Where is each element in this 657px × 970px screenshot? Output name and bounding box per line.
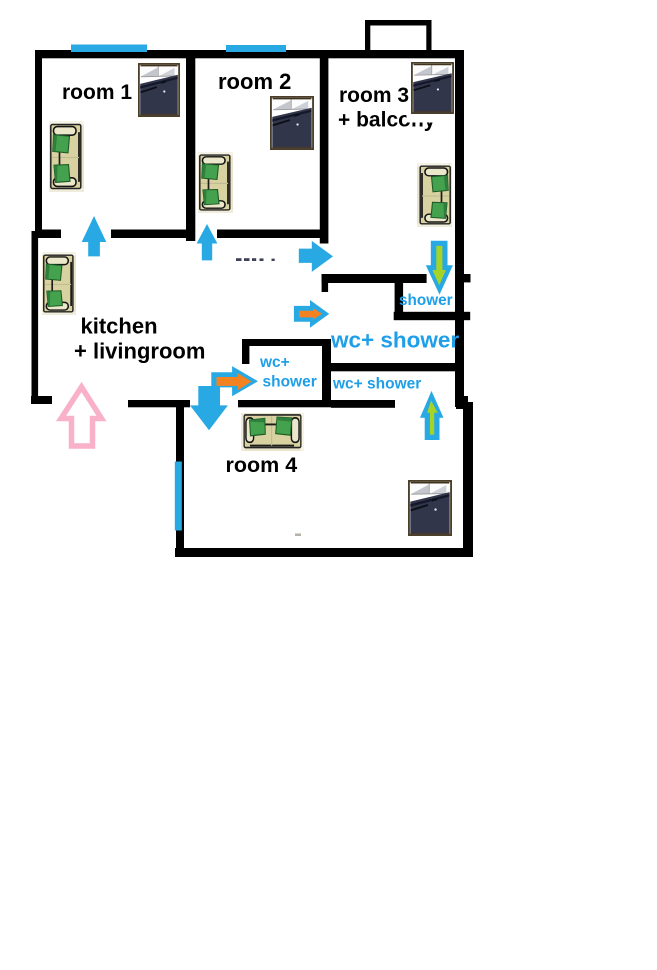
svg-text:wc+ shower: wc+ shower: [330, 328, 459, 353]
svg-text:kitchen: kitchen: [81, 314, 158, 339]
svg-text:room 4: room 4: [226, 453, 298, 477]
svg-text:shower: shower: [263, 374, 317, 391]
svg-text:room 3: room 3: [339, 84, 409, 107]
svg-text:wc+ shower: wc+ shower: [332, 376, 421, 393]
svg-text:room 1: room 1: [62, 81, 132, 104]
svg-text:shower: shower: [399, 292, 453, 309]
svg-text:+ livingroom: + livingroom: [74, 339, 205, 364]
svg-text:room 2: room 2: [218, 69, 291, 94]
svg-text:wc+: wc+: [259, 354, 290, 371]
